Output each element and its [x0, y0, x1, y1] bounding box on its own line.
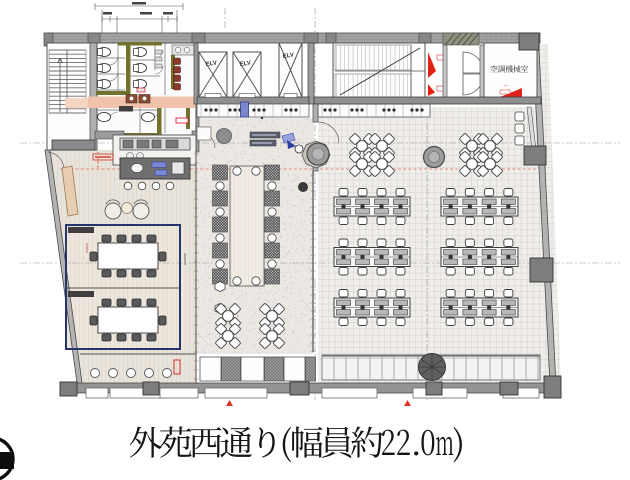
svg-text:一: 一 — [504, 83, 508, 88]
